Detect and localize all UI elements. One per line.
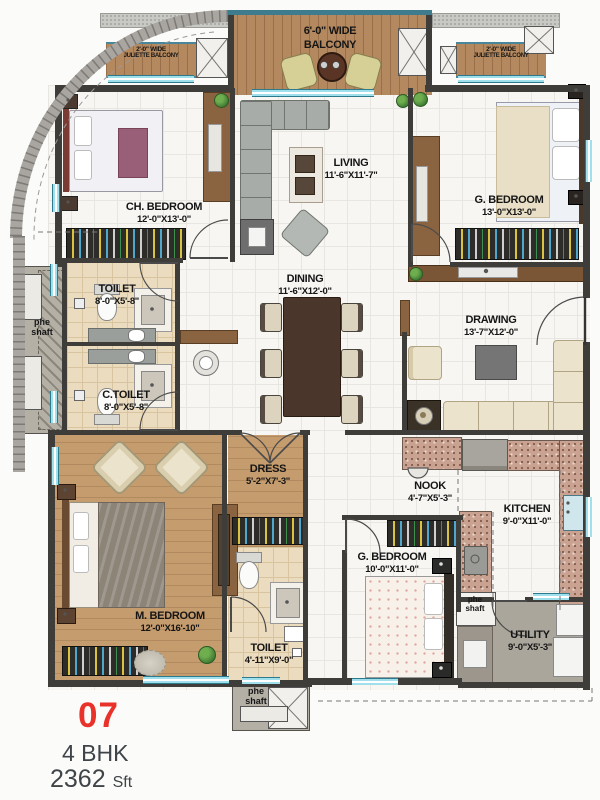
window-gbed-right: [585, 140, 592, 182]
duct-box: [524, 26, 554, 54]
bed-throw: [118, 128, 148, 178]
wall: [230, 88, 235, 262]
wall: [426, 12, 432, 92]
wardrobe: [232, 517, 306, 545]
shower-tray: [276, 588, 300, 618]
wardrobe: [387, 520, 457, 547]
dining-chair: [260, 303, 282, 332]
wall: [55, 258, 183, 263]
pillow: [74, 116, 92, 146]
wall: [175, 262, 180, 435]
window-kitchen-right: [585, 497, 592, 537]
unit-area-unit: Sft: [113, 774, 133, 791]
bed-blanket: [98, 502, 165, 608]
shaft-bottom-meter-box: [240, 706, 288, 722]
wash-basin: [128, 350, 145, 363]
towel-ring: [74, 298, 85, 309]
window-mtoilet-bottom: [242, 677, 280, 684]
unit-area-value: 2362: [50, 765, 106, 793]
nightstand: [432, 558, 452, 574]
dining-chair: [341, 395, 363, 424]
pillow: [552, 146, 580, 180]
floorplan-page: { "unit": { "number": "07", "type": "4 B…: [0, 0, 600, 800]
sofa-cream: [553, 340, 586, 434]
lamp: [415, 407, 433, 425]
window-ch-left: [52, 184, 60, 212]
wall: [62, 262, 67, 435]
coffee-table: [475, 345, 517, 380]
vanity: [88, 349, 156, 364]
dining-table: [283, 297, 341, 417]
wall: [228, 12, 234, 92]
rug: [134, 650, 166, 676]
wall: [303, 432, 308, 680]
wash-counter: [180, 330, 238, 344]
top-band-left: [100, 13, 230, 28]
window-juliette-left: [108, 75, 194, 83]
window-juliette-right: [458, 75, 544, 83]
wall: [55, 85, 230, 92]
wall: [342, 550, 347, 685]
pillow: [74, 150, 92, 180]
pillow: [552, 108, 580, 142]
shower-tray: [141, 295, 165, 325]
window-mbed-bottom: [143, 676, 229, 684]
fridge: [462, 439, 508, 471]
cabinet-drawer: [295, 155, 315, 173]
window-utility-top: [533, 593, 569, 600]
balcony-table: [317, 52, 347, 82]
nightstand: [432, 662, 452, 678]
wall: [402, 332, 407, 432]
duct-box: [196, 38, 228, 78]
pillow: [424, 583, 443, 615]
accent-table-top: [248, 227, 266, 247]
label-kitchen: KITCHEN9'-0"X11'-0": [503, 502, 551, 529]
duct-box: [440, 46, 457, 74]
plant: [214, 93, 229, 108]
label-ch-bedroom: CH. BEDROOM12'-0"X13'-0": [126, 200, 202, 227]
wall: [222, 435, 227, 685]
pillow: [73, 545, 89, 573]
bed-headboard: [62, 500, 69, 608]
tv: [458, 267, 518, 278]
nightstand: [57, 484, 76, 500]
wardrobe: [455, 228, 579, 260]
wall: [48, 430, 242, 435]
wall: [408, 88, 413, 267]
label-shaft-bottom: pheshaft: [245, 687, 267, 707]
plant: [198, 646, 216, 664]
label-g-bedroom-top: G. BEDROOM13'-0"X13'-0": [474, 193, 543, 220]
wc: [239, 561, 259, 589]
wall-balcony-rail: [228, 10, 432, 15]
window-ctoilet-left: [50, 391, 58, 423]
wall: [450, 262, 585, 267]
unit-type: 4 BHK: [62, 740, 128, 767]
wc-tank: [94, 414, 120, 425]
sofa-gray: [240, 100, 272, 222]
window-mbed-left: [51, 447, 59, 485]
wall: [458, 682, 590, 688]
label-nook: NOOK4'-7"X5'-3": [408, 479, 452, 506]
utility-sink: [463, 640, 487, 668]
round-basin-bowl: [199, 356, 213, 370]
wall: [425, 85, 590, 92]
label-toilet-m: TOILET4'-11"X9'-0": [245, 641, 293, 668]
window-hall-bottom: [352, 678, 398, 685]
label-utility: UTILITY9'-0"X5'-3": [508, 628, 552, 655]
wash-basin: [128, 329, 145, 342]
desk: [208, 124, 222, 172]
shaft-left-duct-1: [22, 274, 42, 320]
dining-chair: [341, 303, 363, 332]
wardrobe: [66, 228, 186, 260]
label-m-bedroom: M. BEDROOM12'-0"X16'-10": [135, 609, 205, 636]
cabinet-drawer: [295, 177, 315, 195]
label-g-bedroom-bottom: G. BEDROOM10'-0"X11'-0": [357, 550, 426, 577]
armchair: [408, 346, 442, 380]
stove: [464, 546, 488, 575]
kitchen-sink: [563, 495, 585, 531]
label-living: LIVING11'-6"X11'-7": [325, 156, 378, 183]
wall: [345, 430, 587, 435]
label-drawing: DRAWING13'-7"X12'-0": [464, 313, 518, 340]
label-shaft-right: pheshaft: [465, 596, 484, 614]
nightstand: [60, 94, 78, 109]
label-dining: DINING11'-6"X12'-0": [278, 272, 331, 299]
wash-basin: [284, 626, 304, 642]
label-toilet-top: TOILET8'-0"X5'-8": [95, 282, 139, 309]
nightstand: [60, 196, 78, 211]
towel-ring: [74, 390, 85, 401]
nightstand: [57, 608, 76, 624]
pillow: [73, 512, 89, 540]
window-balcony-slider: [252, 89, 374, 97]
wall: [55, 85, 62, 267]
plant: [413, 92, 428, 107]
dining-chair: [260, 349, 282, 378]
vanity: [88, 328, 156, 343]
pillow: [424, 618, 443, 650]
unit-number: 07: [78, 696, 119, 736]
wall: [342, 515, 463, 520]
dining-chair: [341, 349, 363, 378]
label-juliette-right: 2'-0" WIDEJULIETTE BALCONY: [474, 46, 529, 60]
label-juliette-left: 2'-0" WIDEJULIETTE BALCONY: [124, 46, 179, 60]
wall: [65, 342, 177, 346]
label-balcony: 6'-0" WIDEBALCONY: [304, 24, 357, 53]
desk: [416, 166, 428, 222]
dining-chair: [260, 395, 282, 424]
label-c-toilet: C.TOILET8'-0"X5'-8": [102, 388, 150, 415]
half-wall-wood: [400, 300, 410, 336]
window-toilet-left: [50, 264, 58, 296]
nook-counter: [402, 437, 462, 470]
unit-area: 2362 Sft: [50, 765, 132, 794]
label-shaft-left: pheshaft: [31, 318, 53, 338]
label-dress: DRESS5'-2"X7'-3": [246, 462, 290, 489]
fixture-box: [292, 648, 302, 657]
plant: [409, 267, 423, 281]
shaft-left-duct-2: [22, 356, 42, 410]
